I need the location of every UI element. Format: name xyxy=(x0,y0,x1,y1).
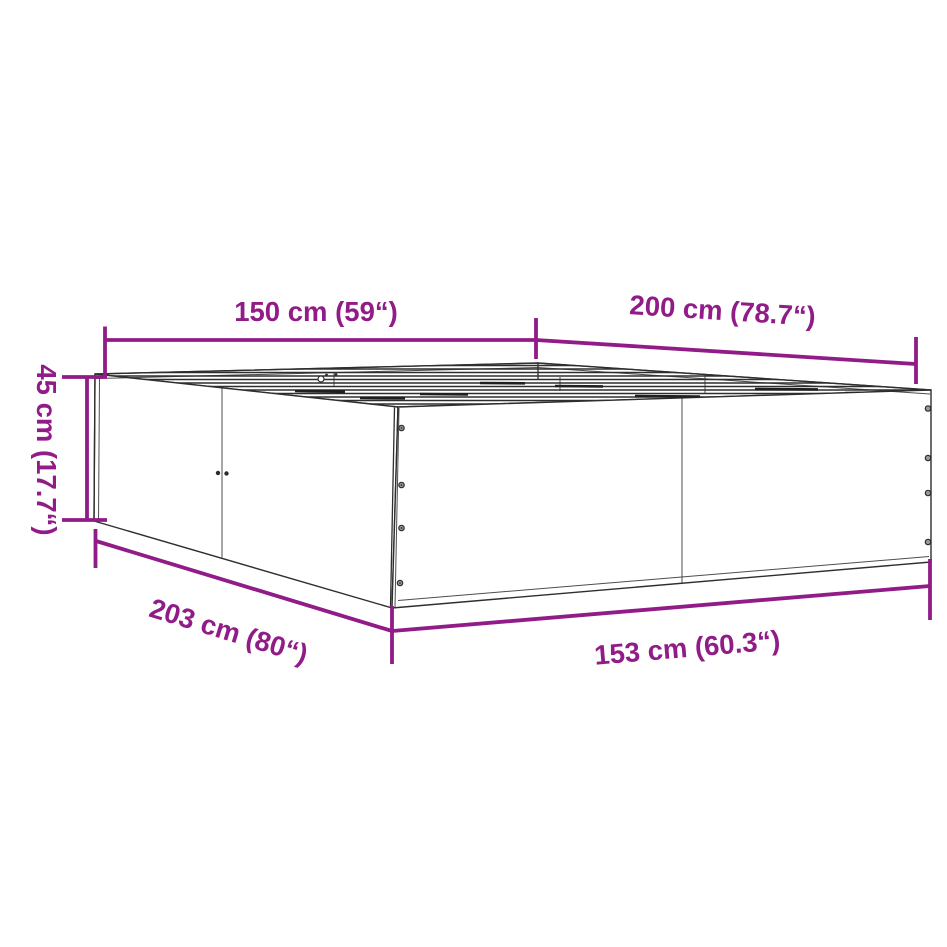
screw-icon xyxy=(925,539,930,544)
seam-knob-icon xyxy=(224,471,228,475)
front-panel xyxy=(392,390,931,608)
dimension-label-top-length: 200 cm (78.7“) xyxy=(629,289,817,332)
seam-knob-icon xyxy=(216,471,220,475)
slat-texture-dash xyxy=(420,394,468,395)
bed-frame-drawing xyxy=(92,363,934,608)
screw-center xyxy=(399,582,401,584)
left-side-panel xyxy=(94,374,398,608)
dimension-line xyxy=(536,340,916,364)
screw-icon xyxy=(925,490,930,495)
screw-icon xyxy=(925,406,930,411)
screw-center xyxy=(401,427,403,429)
dimension-label-height: 45 cm (17.7“) xyxy=(31,364,62,535)
screw-center xyxy=(401,484,403,486)
slat-texture-dash xyxy=(635,396,700,397)
pilot-hole-icon xyxy=(335,373,338,376)
slat-texture-dash xyxy=(295,391,345,392)
dimension-label-bottom-width: 153 cm (60.3“) xyxy=(593,624,781,670)
screw-icon xyxy=(318,376,324,382)
screw-center xyxy=(401,527,403,529)
screw-icon xyxy=(925,455,930,460)
dimension-label-bottom-length: 203 cm (80“) xyxy=(146,592,311,669)
dimension-label-top-width: 150 cm (59“) xyxy=(234,296,398,327)
pilot-hole-icon xyxy=(325,374,328,377)
bed-frame-dimension-diagram: 150 cm (59“) 200 cm (78.7“) 45 cm (17.7“… xyxy=(0,0,947,947)
diagram-canvas: 150 cm (59“) 200 cm (78.7“) 45 cm (17.7“… xyxy=(0,0,947,947)
